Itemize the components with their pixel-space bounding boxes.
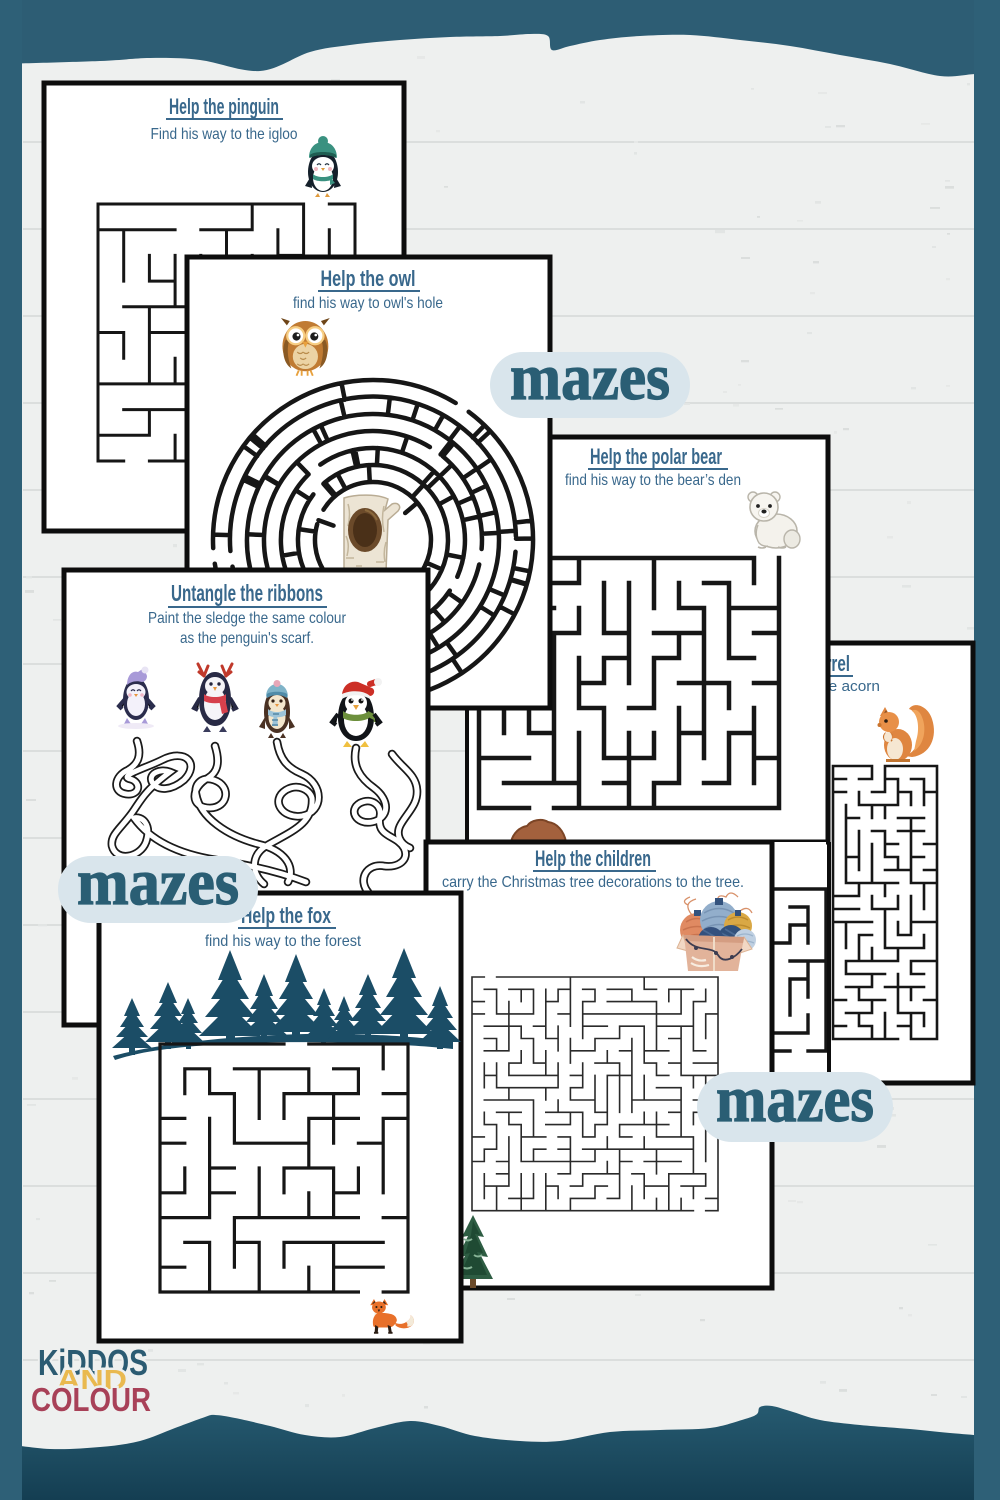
svg-text:mazes: mazes — [77, 846, 239, 919]
svg-text:Help the polar bear: Help the polar bear — [590, 444, 722, 469]
svg-text:Paint the sledge the same colo: Paint the sledge the same colour — [148, 610, 347, 627]
svg-text:Help the owl: Help the owl — [321, 266, 416, 291]
svg-text:Help the pinguin: Help the pinguin — [169, 94, 279, 119]
svg-text:find his way to the forest: find his way to the forest — [205, 933, 362, 950]
svg-text:Untangle the ribbons: Untangle the ribbons — [171, 580, 323, 606]
svg-text:as the penguin's scarf.: as the penguin's scarf. — [180, 630, 314, 647]
svg-text:Help the children: Help the children — [535, 846, 651, 871]
svg-text:Help the fox: Help the fox — [241, 903, 332, 928]
svg-text:find his way to owl's hole: find his way to owl's hole — [293, 295, 443, 312]
svg-text:Find his way to the igloo: Find his way to the igloo — [151, 126, 298, 143]
svg-text:COLOUR: COLOUR — [31, 1381, 151, 1418]
svg-text:carry the Christmas tree decor: carry the Christmas tree decorations to … — [442, 874, 744, 891]
svg-text:find his way to the bear’s den: find his way to the bear’s den — [565, 472, 741, 489]
svg-text:mazes: mazes — [716, 1063, 874, 1136]
svg-text:mazes: mazes — [510, 341, 670, 414]
